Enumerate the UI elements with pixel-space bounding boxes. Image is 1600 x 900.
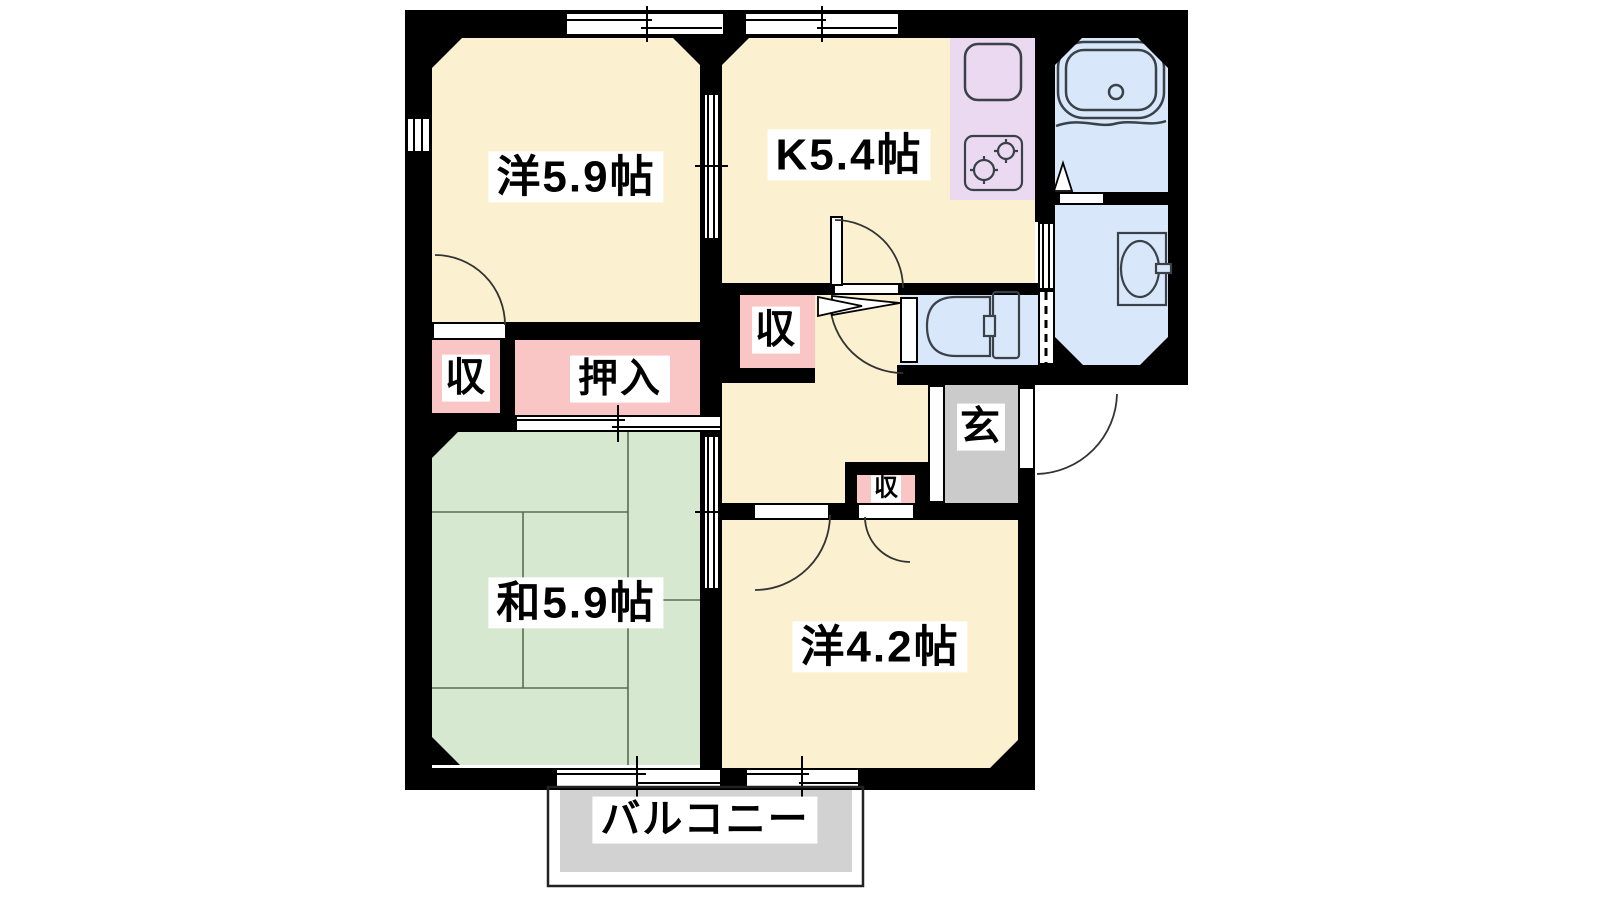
- accordion-door-toilet-washroom: [1038, 290, 1055, 365]
- wall-under-closet: [405, 413, 515, 432]
- floorplan-canvas: 洋5.9帖 K5.4帖 和5.9帖 洋4.2帖 収 押入 収 収 玄 バルコニー: [0, 0, 1600, 900]
- room-label-kitchen: K5.4帖: [768, 129, 931, 180]
- sliding-door-tatami-hall: [703, 435, 720, 590]
- door-leaf-kitchen: [830, 216, 843, 286]
- sliding-door-west59-kitchen: [703, 93, 720, 240]
- kitchen-counter: [950, 38, 1035, 200]
- wall-hallcloset-bottom: [722, 368, 815, 383]
- door-slot-small-closet: [857, 503, 915, 520]
- door-slot-west42: [753, 503, 830, 520]
- closet-label-small: 収: [871, 476, 901, 503]
- room-toilet: [900, 295, 1042, 365]
- wall-closet-divider: [500, 340, 515, 415]
- room-label-balcony: バルコニー: [592, 797, 817, 844]
- window-top-kitchen: [744, 12, 900, 36]
- door-slot-kitchen-hall: [833, 283, 900, 295]
- window-top-west59: [565, 12, 725, 36]
- sliding-door-oshiire: [515, 415, 722, 432]
- wall-exterior-mid: [897, 365, 1188, 385]
- closet-label-bedroom: 収: [442, 355, 490, 402]
- wall-exterior-right-upper: [1168, 10, 1188, 385]
- window-left-west59: [406, 117, 431, 153]
- wall-hallcloset-left: [722, 295, 740, 368]
- wall-smallcloset-right: [915, 462, 928, 503]
- door-slot-toilet: [900, 297, 918, 363]
- door-slot-bedroom-closet: [432, 322, 507, 340]
- wall-kitchen-bath: [1035, 10, 1055, 222]
- room-label-japanese-5-9: 和5.9帖: [488, 577, 663, 628]
- closet-label-hall: 収: [752, 307, 800, 354]
- window-bottom-west42: [745, 768, 860, 790]
- entrance-step: [928, 385, 945, 503]
- balcony-door-tatami: [555, 768, 722, 790]
- door-slot-bathroom: [1058, 192, 1105, 205]
- entrance-door-slot: [1018, 387, 1035, 470]
- room-label-western-5-9: 洋5.9帖: [488, 151, 663, 202]
- room-bathroom: [1055, 38, 1168, 192]
- closet-label-oshiire: 押入: [570, 356, 670, 403]
- sliding-door-washroom: [1038, 222, 1055, 290]
- room-washroom: [1055, 205, 1168, 365]
- room-label-western-4-2: 洋4.2帖: [792, 621, 967, 672]
- room-label-entrance: 玄: [957, 404, 1005, 451]
